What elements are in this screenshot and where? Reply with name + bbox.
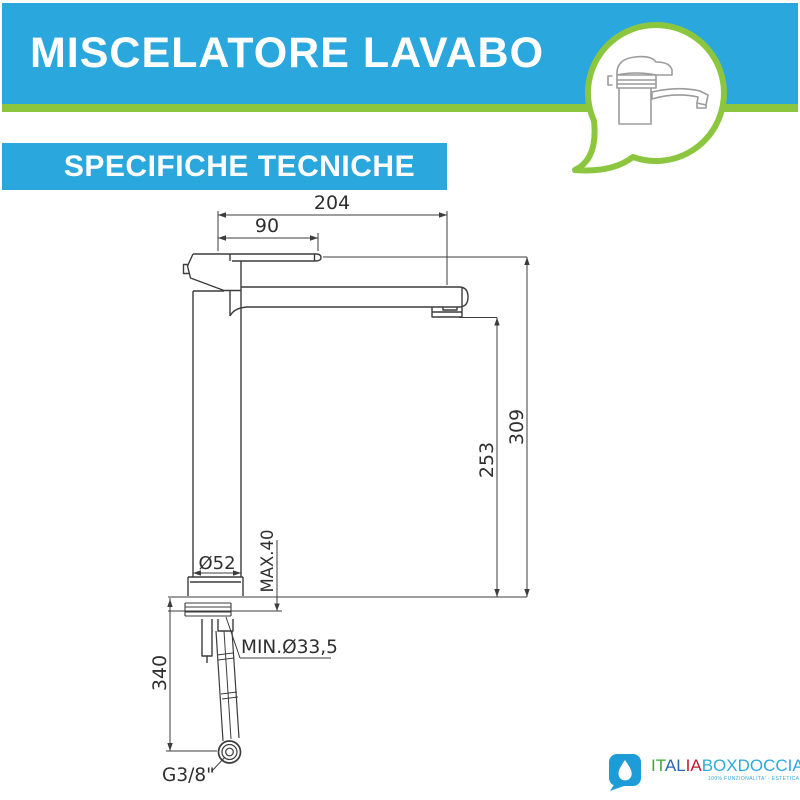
brand-italia-green: IT [651, 756, 665, 775]
water-drop-icon [608, 752, 644, 792]
brand-italia-red: IA [686, 756, 702, 775]
dim-base-diameter: Ø52 [198, 553, 235, 574]
dim-height-spout: 253 [476, 442, 498, 478]
page: MISCELATORE LAVABO SPECIFICHE TECNICHE [0, 0, 800, 800]
brand-italia-blue: AL [665, 756, 686, 775]
dim-height-total: 309 [506, 409, 528, 445]
brand-tagline: 100% FUNZIONALITA' - ESTETICA - PRATICIT… [708, 776, 800, 782]
dimension-labels: 204 90 309 253 340 MAX.40 Ø52 MIN.Ø33,5 … [149, 192, 528, 786]
brand-boxdoccia: BOXDOCCIA [702, 756, 800, 775]
product-bubble [560, 12, 750, 182]
dimension-arrows [167, 212, 529, 751]
dim-max-deck: MAX.40 [258, 529, 277, 592]
dim-hose-length: 340 [149, 655, 171, 691]
brand-name: ITALIABOXDOCCIA [651, 756, 800, 775]
faucet-outline [168, 254, 527, 763]
dim-min-hole: MIN.Ø33,5 [241, 637, 338, 658]
bubble-shape [575, 25, 724, 170]
brand-logo: ITALIABOXDOCCIA 100% FUNZIONALITA' - EST… [608, 752, 800, 792]
dim-reach-handle: 90 [255, 215, 279, 237]
dim-thread: G3/8" [162, 765, 215, 786]
dim-reach-total: 204 [314, 192, 350, 214]
